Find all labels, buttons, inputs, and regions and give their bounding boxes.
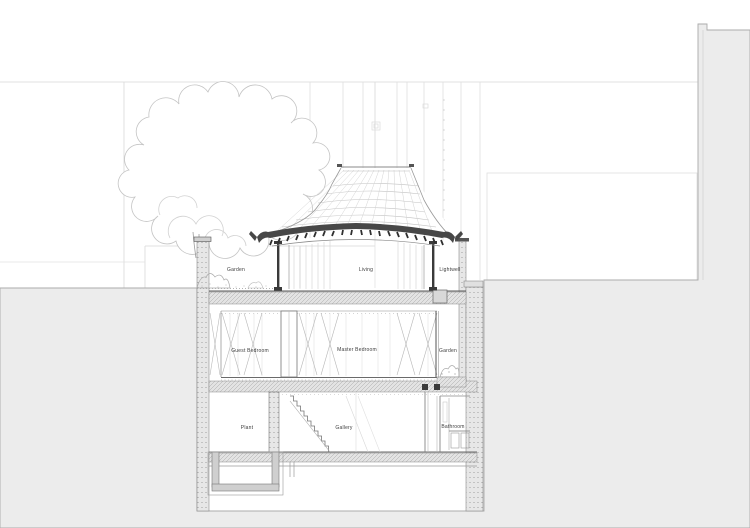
basement-level bbox=[208, 384, 470, 495]
section-drawing-canvas: Garden Living Lightwell Guest Bedroom Ma… bbox=[0, 0, 750, 528]
section-drawing bbox=[0, 0, 750, 528]
downpipe-dots bbox=[443, 99, 444, 230]
bedroom-level bbox=[210, 311, 439, 377]
